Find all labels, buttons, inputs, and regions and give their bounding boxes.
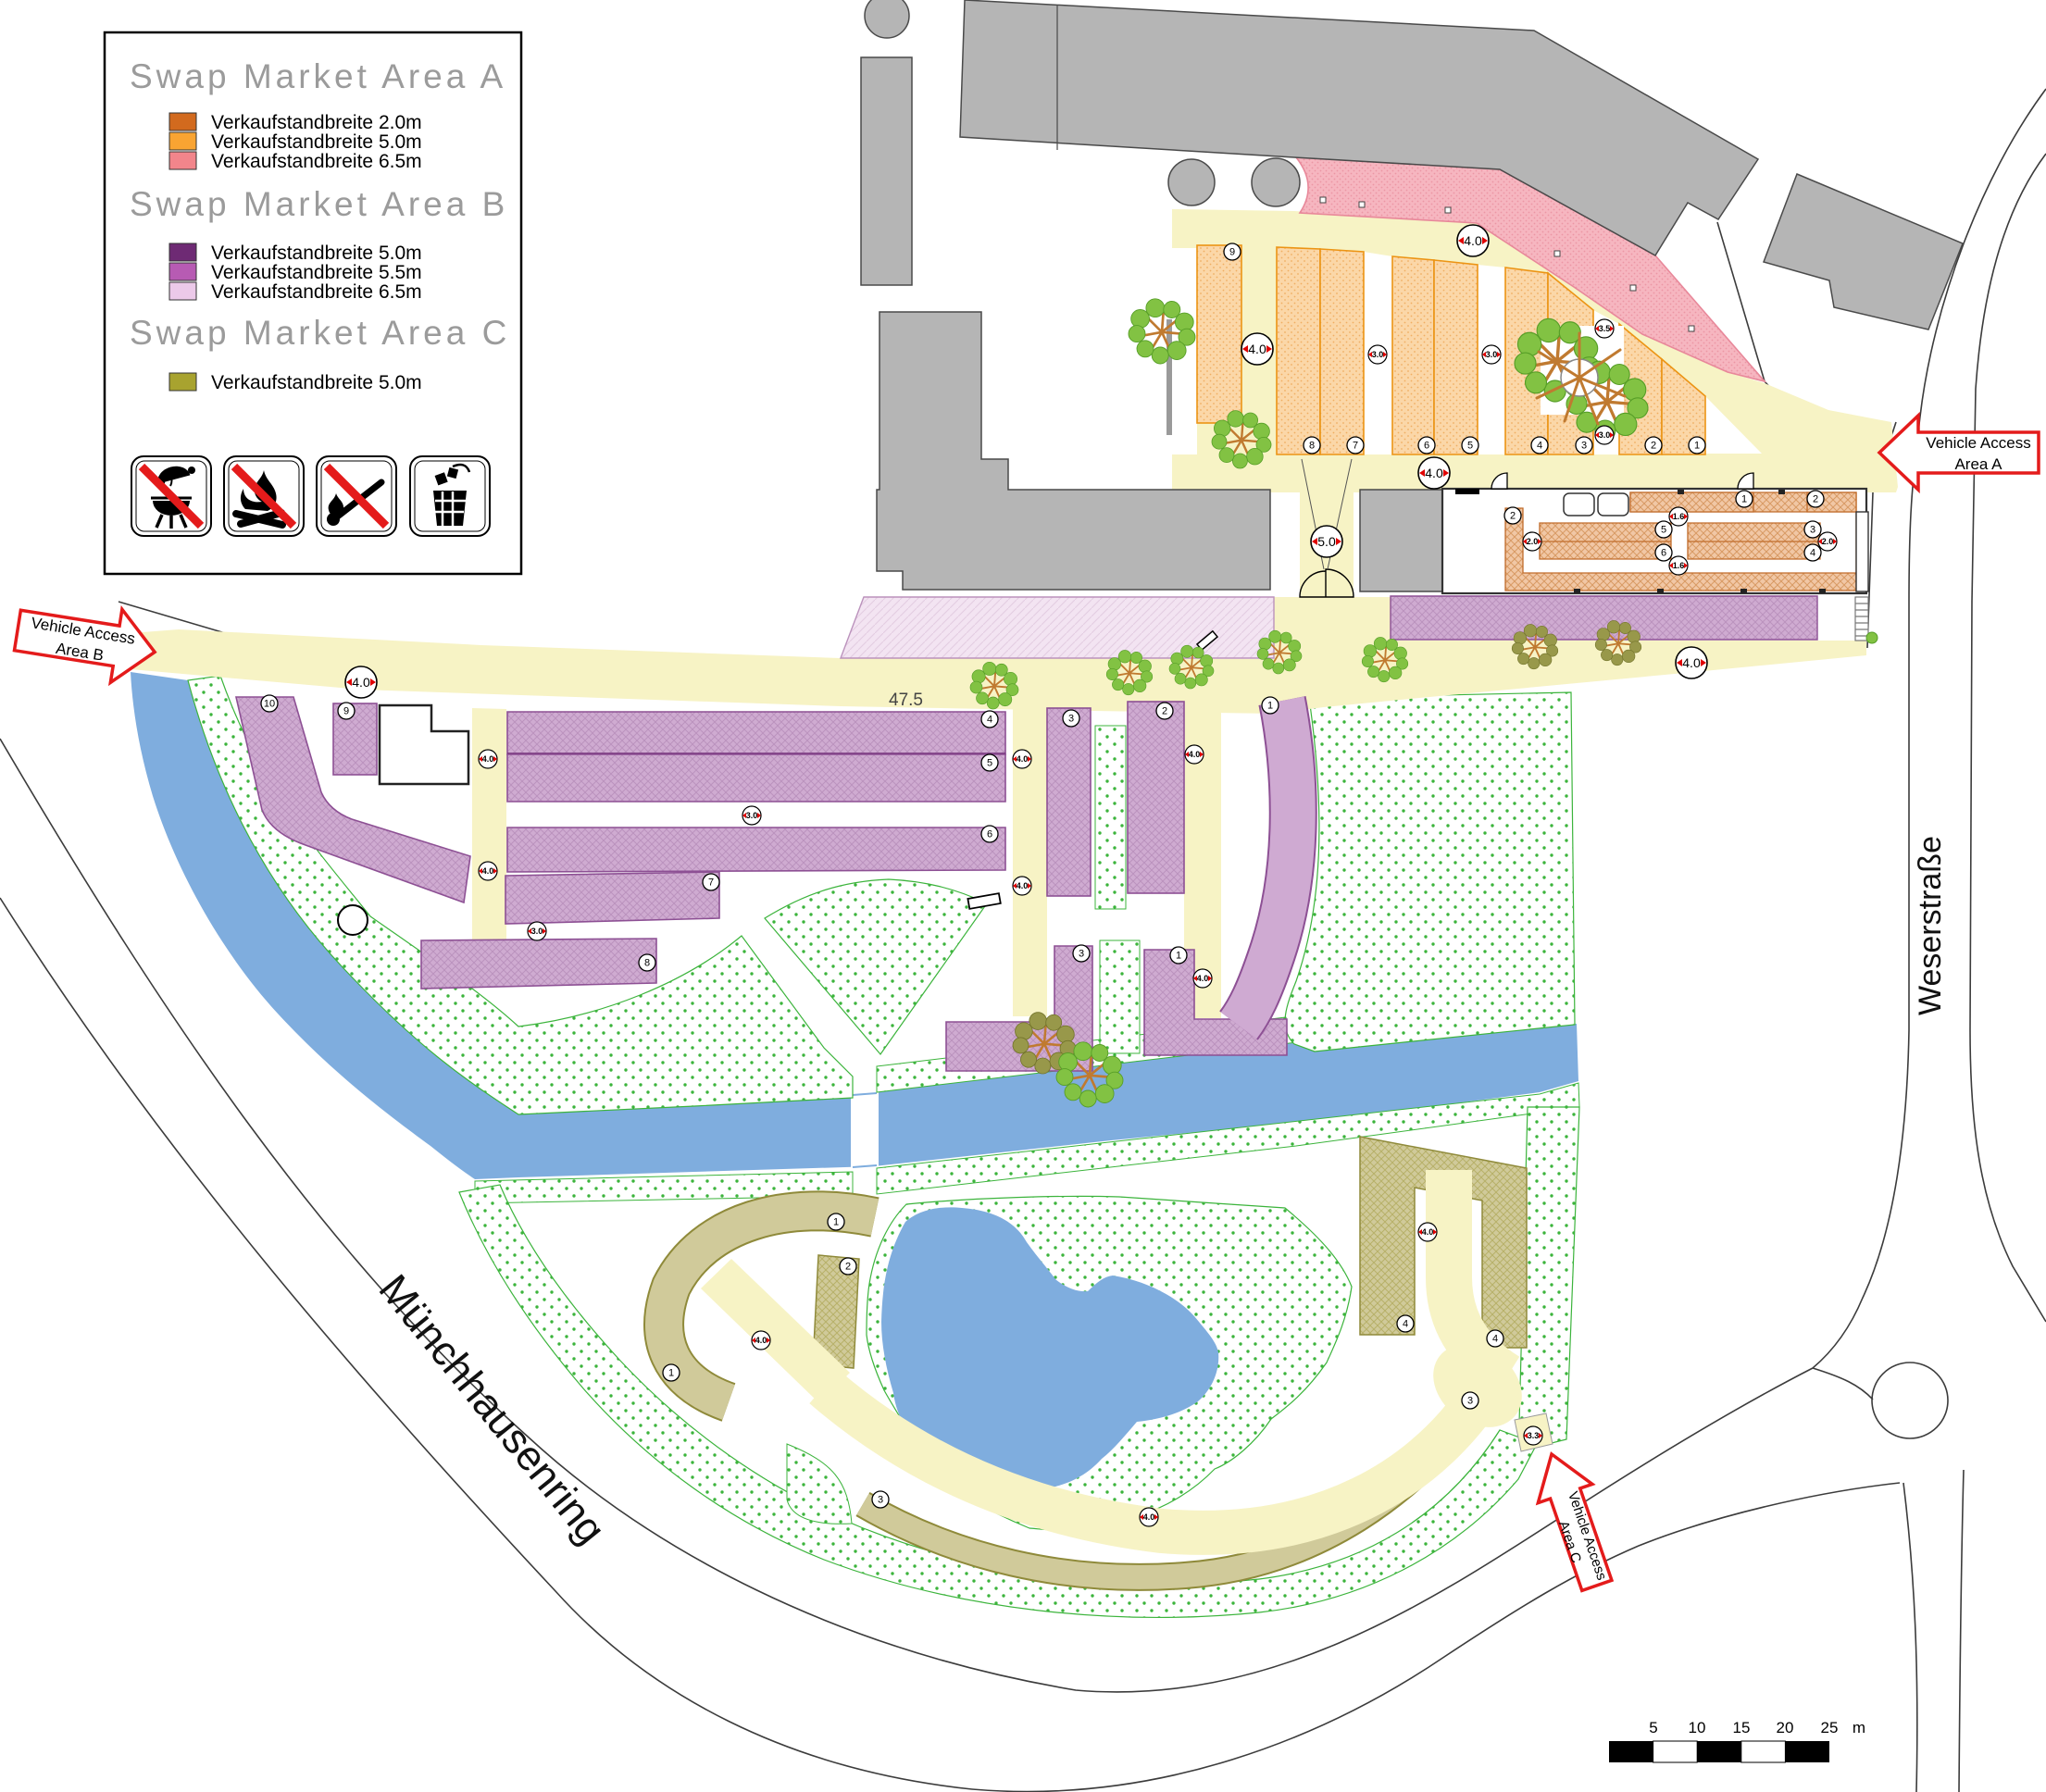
svg-text:4.0: 4.0 — [1143, 1512, 1155, 1522]
svg-text:3.5: 3.5 — [1599, 324, 1611, 333]
svg-text:1: 1 — [1176, 951, 1181, 962]
svg-text:20: 20 — [1777, 1719, 1794, 1736]
svg-text:1: 1 — [668, 1368, 674, 1379]
svg-text:5: 5 — [987, 758, 992, 769]
svg-text:47.5: 47.5 — [889, 691, 923, 710]
svg-text:Verkaufstandbreite 5.0m: Verkaufstandbreite 5.0m — [211, 131, 422, 153]
svg-text:Area A: Area A — [1954, 455, 2002, 473]
svg-text:3: 3 — [1079, 949, 1084, 960]
svg-text:1.6: 1.6 — [1673, 512, 1685, 521]
svg-text:8: 8 — [1309, 441, 1315, 452]
svg-text:4.0: 4.0 — [352, 675, 370, 690]
svg-text:3: 3 — [1581, 441, 1587, 452]
svg-text:Verkaufstandbreite 6.5m: Verkaufstandbreite 6.5m — [211, 281, 422, 303]
svg-text:2: 2 — [845, 1262, 851, 1273]
svg-text:Vehicle Access: Vehicle Access — [1926, 434, 2030, 452]
svg-text:7: 7 — [708, 877, 714, 889]
svg-text:9: 9 — [1229, 247, 1235, 258]
svg-text:8: 8 — [644, 958, 650, 969]
svg-text:6: 6 — [1661, 548, 1666, 559]
svg-text:1: 1 — [1694, 441, 1700, 452]
svg-text:3: 3 — [1810, 525, 1815, 536]
svg-text:4.0: 4.0 — [1017, 754, 1029, 764]
svg-text:4.0: 4.0 — [1464, 233, 1482, 248]
svg-text:4.0: 4.0 — [1422, 1227, 1434, 1237]
svg-text:10: 10 — [264, 699, 275, 710]
svg-text:Swap Market Area B: Swap Market Area B — [130, 185, 508, 223]
svg-text:Weserstraße: Weserstraße — [1913, 836, 1948, 1015]
svg-text:4: 4 — [1492, 1334, 1498, 1345]
svg-text:6: 6 — [1424, 441, 1429, 452]
svg-text:1: 1 — [1267, 701, 1273, 712]
svg-text:1: 1 — [1741, 494, 1747, 505]
svg-text:Verkaufstandbreite 5.0m: Verkaufstandbreite 5.0m — [211, 372, 422, 393]
svg-text:4.0: 4.0 — [1425, 466, 1443, 480]
svg-text:3.0: 3.0 — [1599, 430, 1611, 440]
svg-text:5.0: 5.0 — [1317, 534, 1336, 549]
svg-text:4.0: 4.0 — [1248, 342, 1266, 356]
svg-text:6: 6 — [987, 829, 992, 840]
svg-text:7: 7 — [1353, 441, 1358, 452]
svg-text:4: 4 — [1537, 441, 1542, 452]
svg-text:Verkaufstandbreite 6.5m: Verkaufstandbreite 6.5m — [211, 151, 422, 172]
svg-text:3.0: 3.0 — [531, 927, 543, 936]
svg-text:5: 5 — [1467, 441, 1473, 452]
svg-text:4: 4 — [987, 715, 992, 726]
svg-text:5: 5 — [1649, 1719, 1657, 1736]
svg-text:2: 2 — [1813, 494, 1818, 505]
svg-text:5: 5 — [1661, 525, 1666, 536]
svg-text:3.0: 3.0 — [1372, 350, 1384, 359]
svg-text:3: 3 — [878, 1495, 883, 1506]
svg-text:3.3: 3.3 — [1528, 1431, 1540, 1440]
svg-text:4: 4 — [1403, 1319, 1408, 1330]
svg-text:3: 3 — [1068, 714, 1074, 725]
svg-text:Verkaufstandbreite 2.0m: Verkaufstandbreite 2.0m — [211, 112, 422, 133]
svg-text:4.0: 4.0 — [1682, 655, 1701, 670]
svg-text:2.0: 2.0 — [1527, 537, 1539, 546]
svg-text:3.0: 3.0 — [1486, 350, 1498, 359]
svg-text:10: 10 — [1689, 1719, 1706, 1736]
svg-text:Swap Market Area A: Swap Market Area A — [130, 57, 506, 95]
svg-text:2: 2 — [1162, 706, 1167, 717]
svg-text:Verkaufstandbreite 5.5m: Verkaufstandbreite 5.5m — [211, 262, 422, 283]
svg-text:2: 2 — [1651, 441, 1656, 452]
svg-text:4.0: 4.0 — [482, 754, 494, 764]
svg-text:1.6: 1.6 — [1673, 561, 1685, 570]
svg-text:2: 2 — [1510, 511, 1516, 522]
svg-text:15: 15 — [1733, 1719, 1751, 1736]
svg-text:1: 1 — [833, 1217, 839, 1228]
svg-text:25: 25 — [1821, 1719, 1839, 1736]
svg-text:3.0: 3.0 — [746, 811, 758, 820]
svg-text:3: 3 — [1467, 1396, 1473, 1407]
svg-text:4.0: 4.0 — [1197, 974, 1209, 983]
svg-text:Verkaufstandbreite 5.0m: Verkaufstandbreite 5.0m — [211, 243, 422, 264]
svg-text:4: 4 — [1810, 548, 1815, 559]
svg-text:4.0: 4.0 — [755, 1336, 767, 1345]
svg-text:4.0: 4.0 — [1017, 881, 1029, 890]
svg-text:4.0: 4.0 — [1189, 750, 1201, 759]
svg-text:Swap Market Area C: Swap Market Area C — [130, 314, 510, 352]
svg-text:2.0: 2.0 — [1822, 537, 1834, 546]
svg-text:9: 9 — [343, 706, 349, 717]
svg-text:4.0: 4.0 — [482, 866, 494, 876]
svg-text:m: m — [1853, 1719, 1865, 1736]
